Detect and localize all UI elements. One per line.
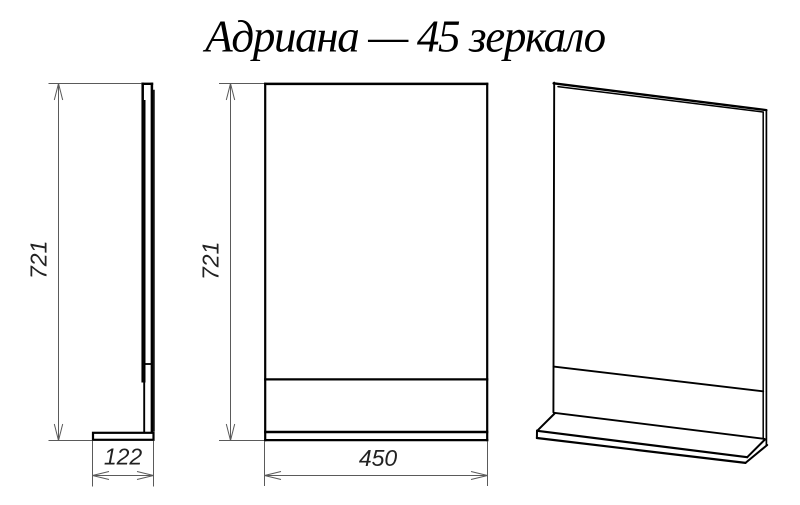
- svg-text:450: 450: [359, 445, 398, 471]
- svg-text:721: 721: [26, 241, 52, 279]
- svg-text:122: 122: [104, 443, 143, 469]
- svg-text:721: 721: [198, 242, 224, 280]
- svg-text:Адриана — 45 зеркало: Адриана — 45 зеркало: [202, 12, 605, 62]
